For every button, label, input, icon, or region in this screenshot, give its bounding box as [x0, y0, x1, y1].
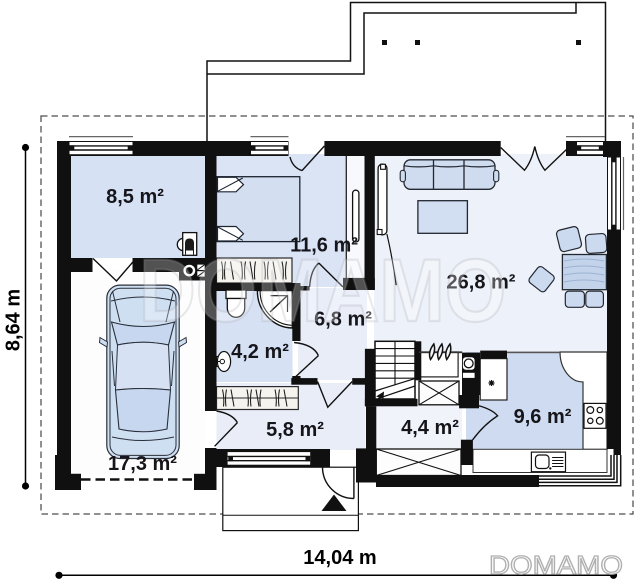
- svg-text:8,5 m²: 8,5 m²: [106, 186, 164, 208]
- svg-text:5,8 m²: 5,8 m²: [266, 419, 324, 441]
- svg-text:17,3 m²: 17,3 m²: [108, 453, 177, 475]
- svg-text:8,64 m: 8,64 m: [3, 289, 25, 351]
- svg-text:4,4 m²: 4,4 m²: [401, 417, 459, 439]
- svg-text:14,04 m: 14,04 m: [303, 547, 376, 569]
- svg-text:9,6 m²: 9,6 m²: [514, 406, 572, 428]
- svg-text:DOMAMO: DOMAMO: [139, 240, 506, 340]
- svg-text:DOMAMO: DOMAMO: [489, 550, 623, 580]
- svg-text:4,2 m²: 4,2 m²: [231, 341, 289, 363]
